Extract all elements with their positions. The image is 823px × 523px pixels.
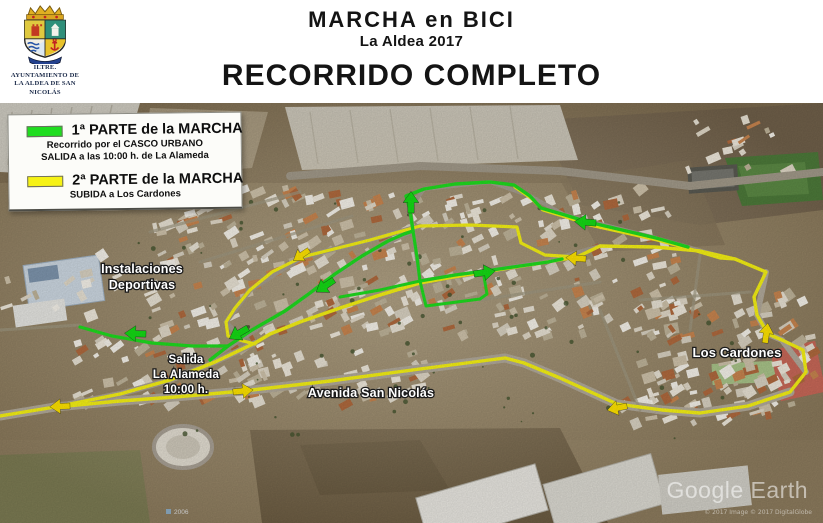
attribution-text: © 2017 Image © 2017 DigitalGlobe [704,509,812,516]
event-subtitle: La Aldea 2017 [0,33,823,50]
label-salida-line1: Salida [168,354,203,366]
label-salida-line3: 10:00 h. [164,384,208,396]
legend-part1-title: 1ª PARTE de la MARCHA [72,121,243,139]
label-los-cardones: Los Cardones [692,345,781,360]
legend-part2-desc1: SUBIDA a Los Cardones [12,188,238,202]
imagery-year: 2006 [174,509,189,516]
label-avenida: Avenida San Nicolás [308,386,434,400]
label-instalaciones-line1: Instalaciones [101,262,183,276]
header-titles: MARCHA en BICI La Aldea 2017 RECORRIDO C… [0,0,823,93]
page-title: RECORRIDO COMPLETO [0,59,823,93]
legend-swatch-part1 [27,125,63,136]
label-salida-line2: La Alameda [153,369,220,381]
event-title: MARCHA en BICI [0,7,823,33]
poster-page: ILTRE. AYUNTAMIENTO DE LA ALDEA DE SAN N… [0,0,823,523]
legend-part2-title: 2ª PARTE de la MARCHA [72,171,243,189]
legend-box: 1ª PARTE de la MARCHA Recorrido por el C… [7,112,242,212]
header: ILTRE. AYUNTAMIENTO DE LA ALDEA DE SAN N… [0,0,823,103]
legend-swatch-part2 [27,175,63,186]
label-instalaciones-line2: Deportivas [109,278,176,292]
google-earth-watermark: Google Earth [666,477,808,503]
